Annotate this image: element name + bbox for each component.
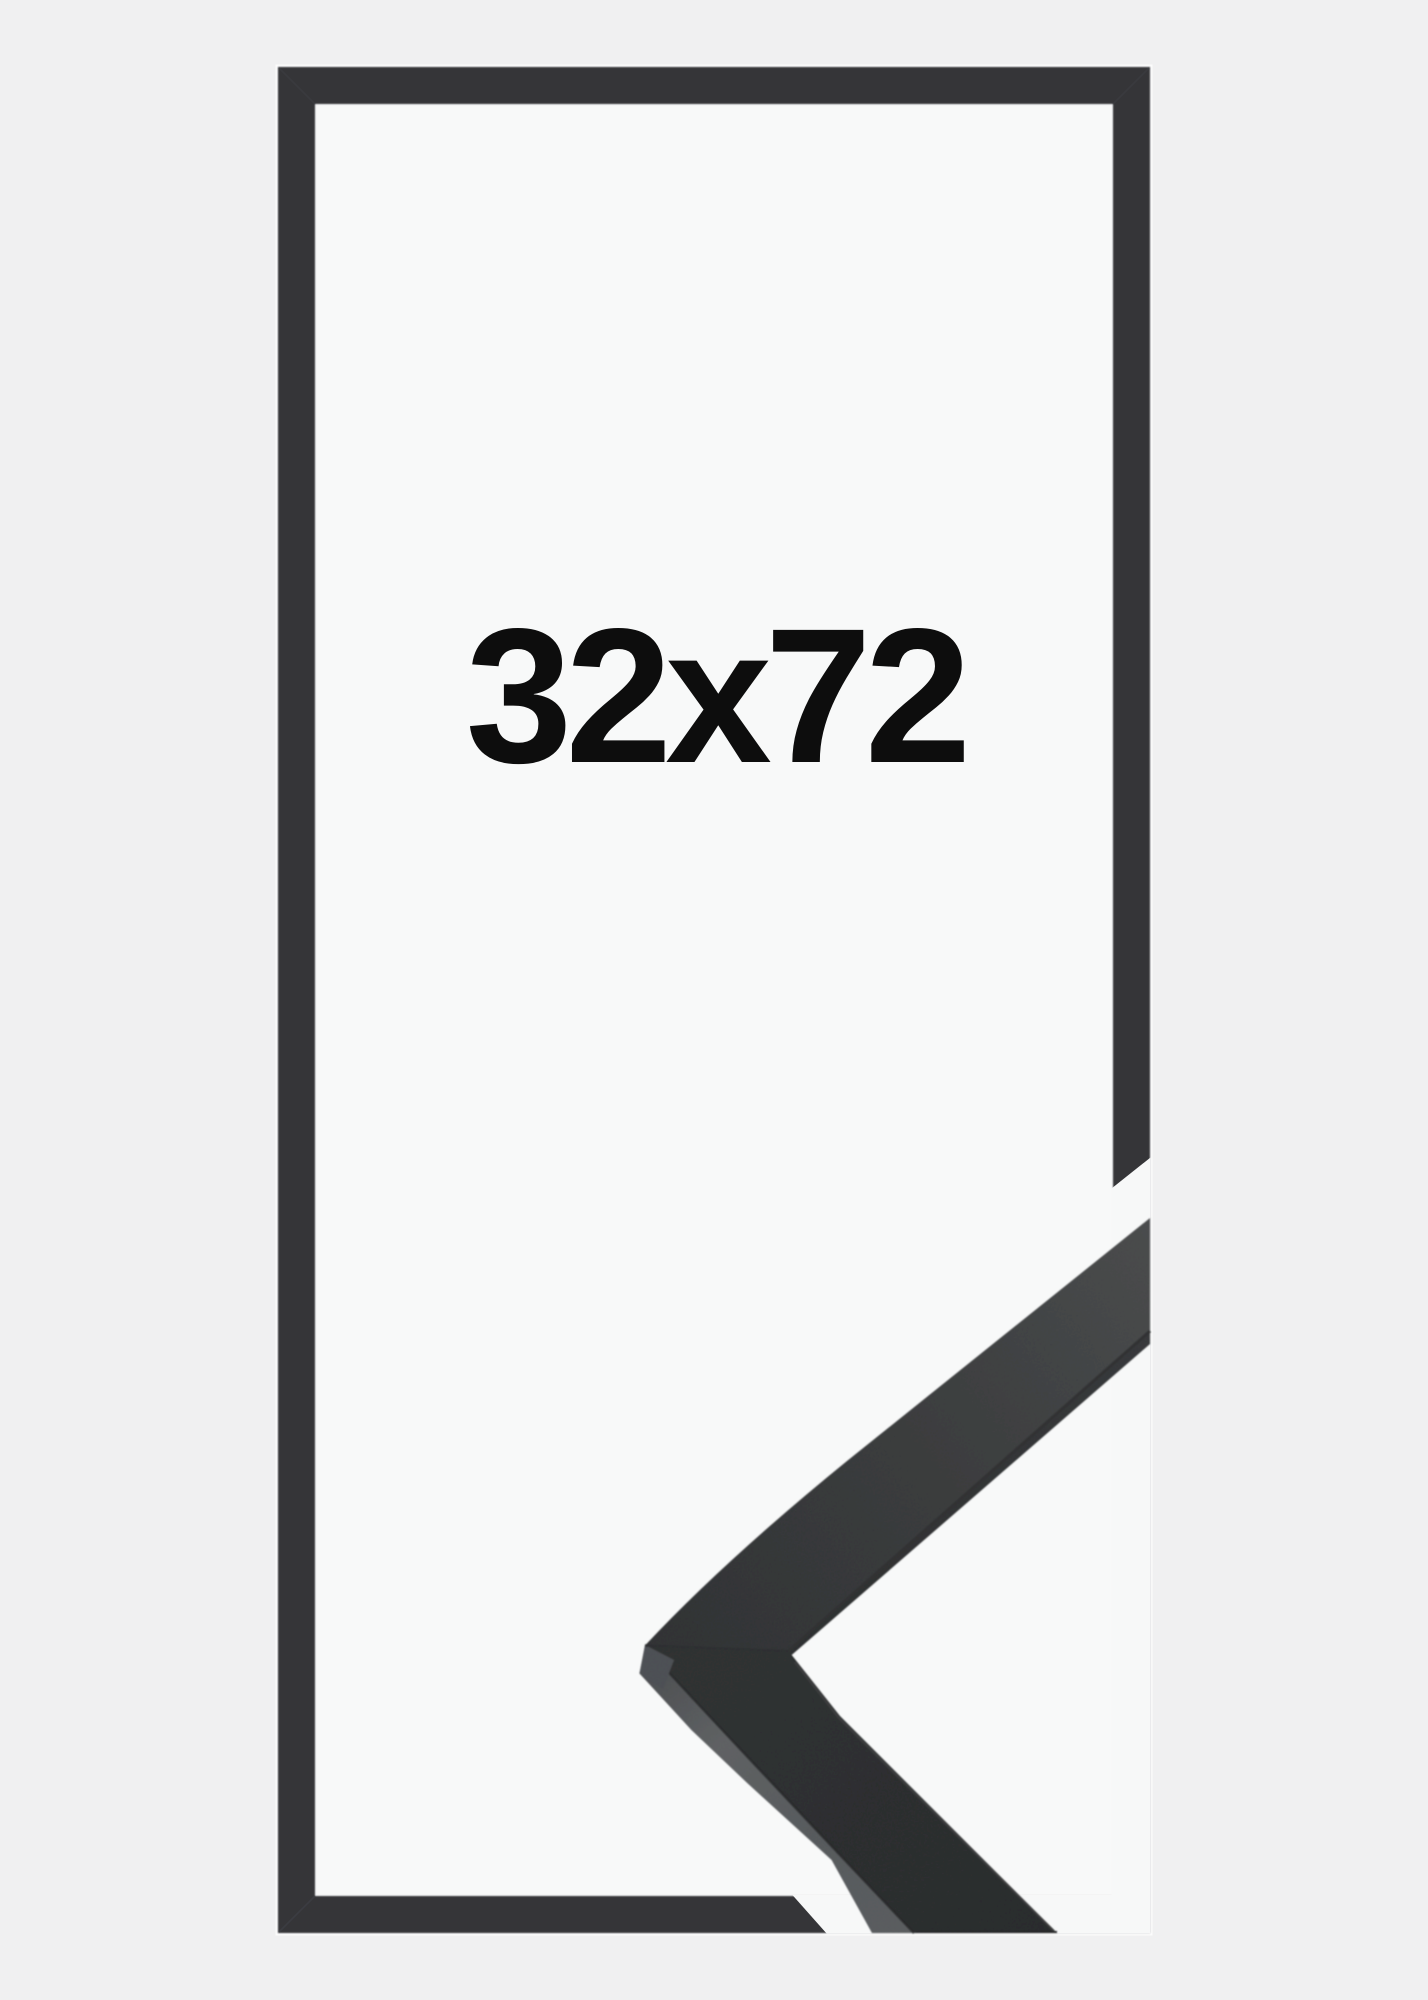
- svg-text:32x72: 32x72: [466, 588, 965, 803]
